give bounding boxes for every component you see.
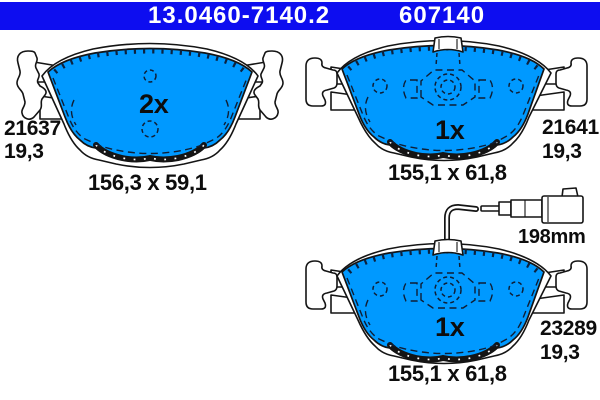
dimensions-left: 156,3 x 59,1 [88,172,207,194]
quantity-label-left: 2x [139,91,168,118]
sensor-wire-length: 198mm [518,227,585,247]
reference-number: 607140 [399,4,485,28]
wva-number-left: 21637 [4,118,61,139]
wva-number-right-bottom: 23289 [540,318,597,339]
quantity-label-right-top: 1x [435,117,464,144]
thickness-left: 19,3 [4,141,44,162]
thickness-right-top: 19,3 [542,141,582,162]
quantity-label-right-bottom: 1x [435,314,464,341]
wear-sensor-tab [433,240,463,256]
catalog-number: 13.0460-7140.2 [148,4,330,28]
wva-number-right-top: 21641 [542,117,599,138]
wear-sensor-connector-plug [481,188,583,223]
dimensions-right-bottom: 155,1 x 61,8 [388,363,507,385]
wear-sensor-tab [433,37,463,53]
dimensions-right-top: 155,1 x 61,8 [388,162,507,184]
thickness-right-bottom: 19,3 [540,342,580,363]
header-bar: 13.0460-7140.2 607140 [0,2,600,30]
